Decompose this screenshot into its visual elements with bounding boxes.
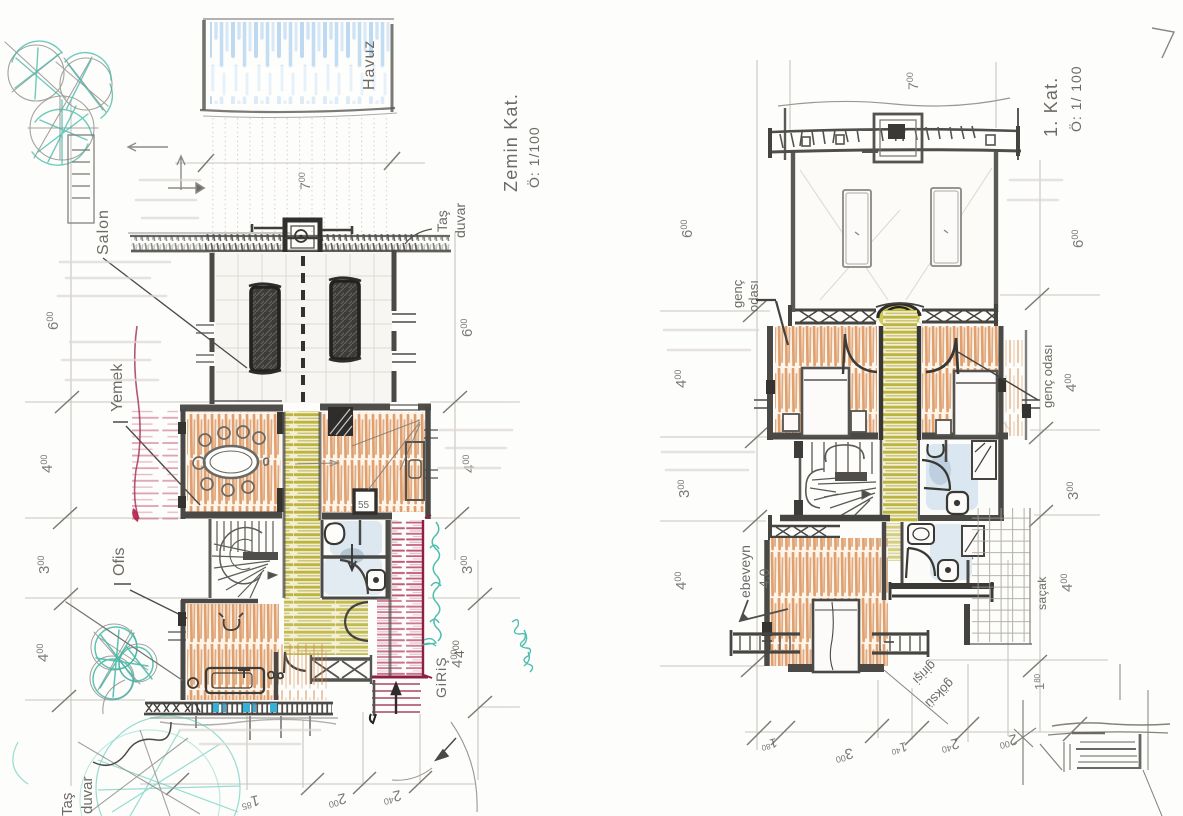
svg-text:Zemin Kat.: Zemin Kat. (501, 93, 521, 192)
svg-text:4.0: 4.0 (756, 568, 772, 588)
svg-text:genç odası: genç odası (1040, 344, 1055, 408)
svg-text:Ofis: Ofis (111, 548, 128, 576)
svg-text:GiRiŞ: GiRiŞ (433, 656, 449, 698)
svg-text:genç: genç (730, 279, 745, 308)
svg-text:Havuz: Havuz (361, 40, 378, 90)
svg-text:1. Kat.: 1. Kat. (1041, 77, 1061, 137)
svg-text:Taş: Taş (434, 210, 450, 232)
svg-text:Ö: 1/ 100: Ö: 1/ 100 (1067, 65, 1084, 132)
svg-text:duvar: duvar (452, 203, 468, 238)
svg-text:saçak: saçak (1035, 576, 1049, 610)
svg-text:Salon: Salon (95, 209, 112, 255)
svg-text:55: 55 (358, 500, 370, 511)
svg-text:ebeveyn: ebeveyn (737, 545, 753, 598)
svg-text:Yemek: Yemek (109, 363, 126, 412)
svg-text:duvar: duvar (79, 776, 96, 814)
svg-text:Taş: Taş (59, 793, 76, 816)
svg-text:odası: odası (746, 280, 761, 312)
svg-text:Ö: 1/100: Ö: 1/100 (525, 126, 542, 188)
